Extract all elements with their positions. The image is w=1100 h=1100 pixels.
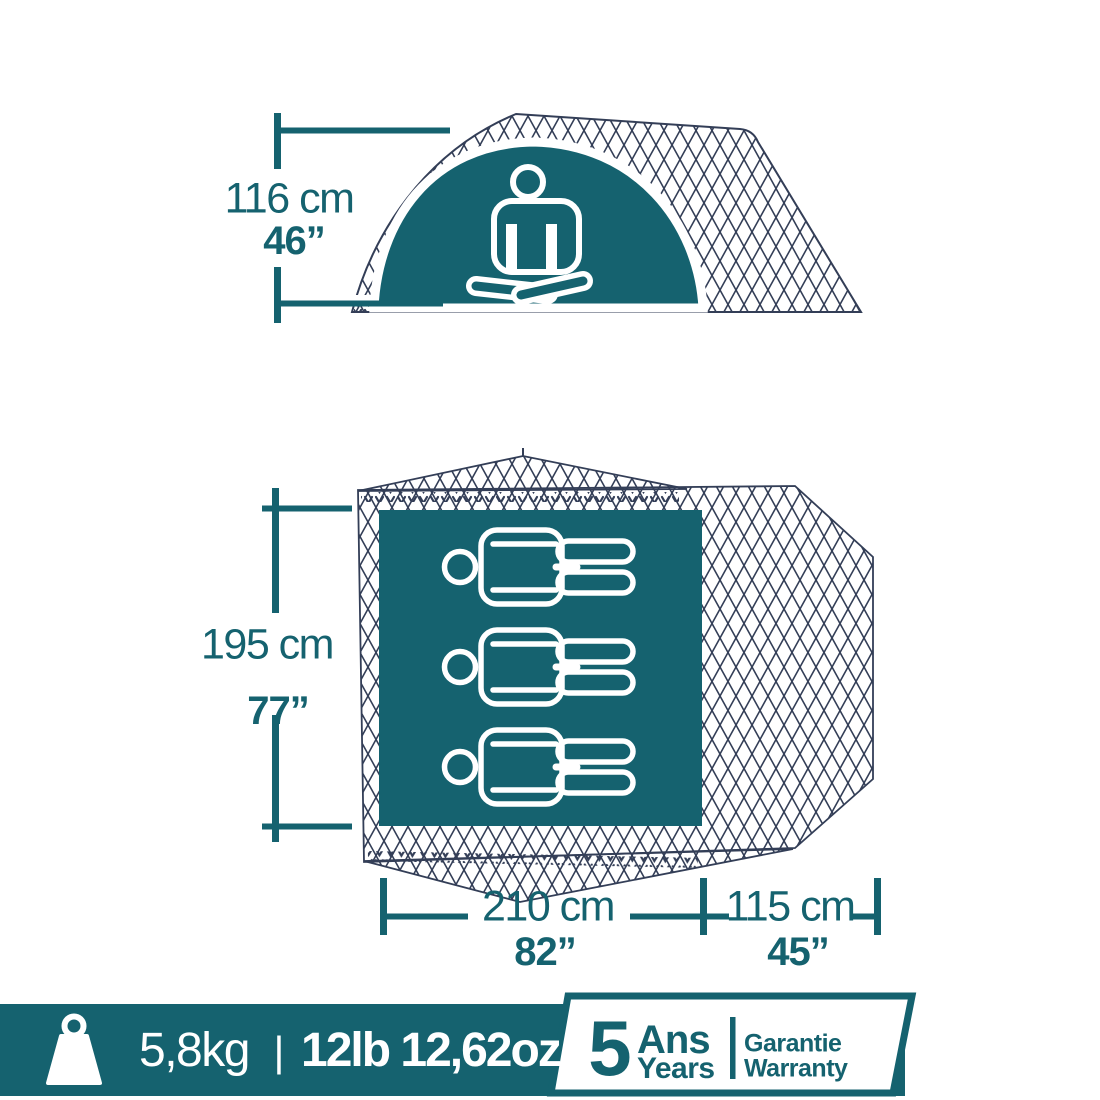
- warranty-label-fr: Garantie: [744, 1032, 841, 1057]
- peg-marks-floor-top: [361, 492, 679, 502]
- weight-metric-label: 5,8kg: [139, 1027, 249, 1075]
- floor-top-flap: [358, 456, 687, 491]
- vestibule-in-label: 45”: [767, 932, 829, 972]
- warranty-label-en: Warranty: [744, 1057, 847, 1082]
- height-in-label: 46”: [263, 221, 325, 261]
- weight-imperial-label: 12lb 12,62oz: [301, 1027, 560, 1075]
- weight-separator: |: [274, 1031, 285, 1073]
- depth-in-label: 77”: [247, 691, 309, 731]
- tent-side-view: [274, 113, 861, 323]
- warranty-years-en: Years: [637, 1054, 715, 1084]
- warranty-divider: [730, 1017, 736, 1079]
- warranty-years-number: 5: [588, 1009, 629, 1087]
- tent-dimensions-infographic: 116 cm 46” 195 cm 77” 210 cm 82” 115 cm …: [0, 0, 1100, 1100]
- vestibule-cm-label: 115 cm: [726, 886, 855, 929]
- bedroom-area: [379, 510, 702, 826]
- depth-cm-label: 195 cm: [201, 624, 333, 667]
- tent-floor-plan: [262, 448, 878, 935]
- width-in-label: 82”: [514, 932, 576, 972]
- width-cm-label: 210 cm: [482, 886, 614, 929]
- height-cm-label: 116 cm: [225, 178, 354, 221]
